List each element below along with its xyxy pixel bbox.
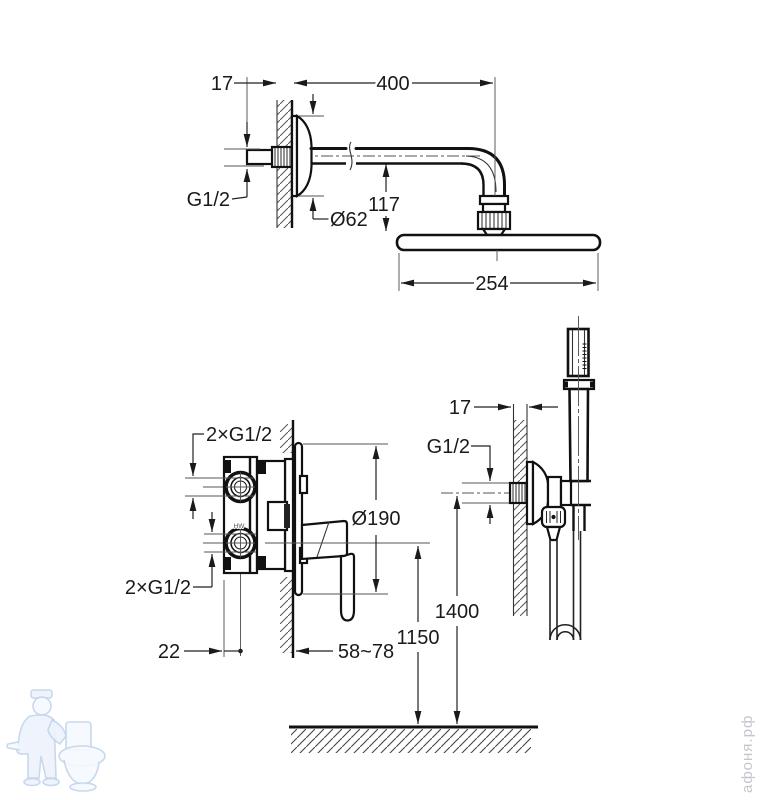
wall-thread	[272, 147, 292, 167]
holder-wall-thread	[510, 483, 527, 503]
shower-head-disc	[397, 235, 600, 250]
plumber-figure	[7, 690, 66, 786]
hose-swivel-nut	[542, 507, 565, 540]
dim-arm-escutcheon-dia: Ø62	[330, 209, 368, 231]
port-marking: HW	[234, 523, 246, 530]
dim-holder-mount-height: 1400	[435, 601, 480, 623]
dim-arm-wall-offset: 17	[211, 73, 233, 95]
overhead-shower-drawing: 17 400 G1/2 Ø62 117	[187, 73, 600, 295]
plumber-watermark	[7, 690, 105, 791]
swivel-connector	[478, 196, 510, 235]
floor-line	[289, 727, 538, 753]
mixer-escutcheon-edge	[295, 443, 302, 595]
supply-nipple	[247, 150, 274, 164]
dim-mixer-mount-height: 1150	[396, 627, 439, 649]
handshower-dimensions: 17 G1/2 1400	[427, 397, 558, 724]
arm-escutcheon	[292, 116, 312, 196]
dim-holder-thread: G1/2	[427, 436, 470, 458]
shower-set-installation-diagram: 17 400 G1/2 Ø62 117	[0, 0, 776, 800]
dim-holder-wall-offset: 17	[449, 397, 471, 419]
dim-top-ports: 2×G1/2	[206, 424, 272, 446]
shower-hose	[550, 531, 581, 640]
handshower-wall-section	[514, 404, 528, 616]
technical-drawing-page: 17 400 G1/2 Ø62 117	[0, 0, 776, 800]
concealed-mixer-drawing: HW 2×G1/2 2×G1/2	[125, 420, 440, 724]
shower-arm-tube	[311, 142, 505, 196]
dim-depth-range: 58~78	[338, 641, 394, 663]
dim-head-drop-height: 117	[368, 194, 400, 216]
hand-shower-drawing: 17 G1/2 1400	[427, 316, 594, 724]
watermark-brand-text: афоня.рф	[739, 715, 756, 793]
dim-arm-length: 400	[376, 73, 409, 95]
dim-arm-thread: G1/2	[187, 189, 230, 211]
dim-body-offset: 22	[158, 641, 180, 663]
overhead-dimensions: 17 400 G1/2 Ø62 117	[187, 73, 598, 295]
mixer-lever-handle	[302, 521, 354, 621]
dim-head-width: 254	[475, 273, 508, 295]
dim-mixer-escutcheon-dia: Ø190	[352, 508, 401, 530]
dim-bottom-ports: 2×G1/2	[125, 577, 191, 599]
